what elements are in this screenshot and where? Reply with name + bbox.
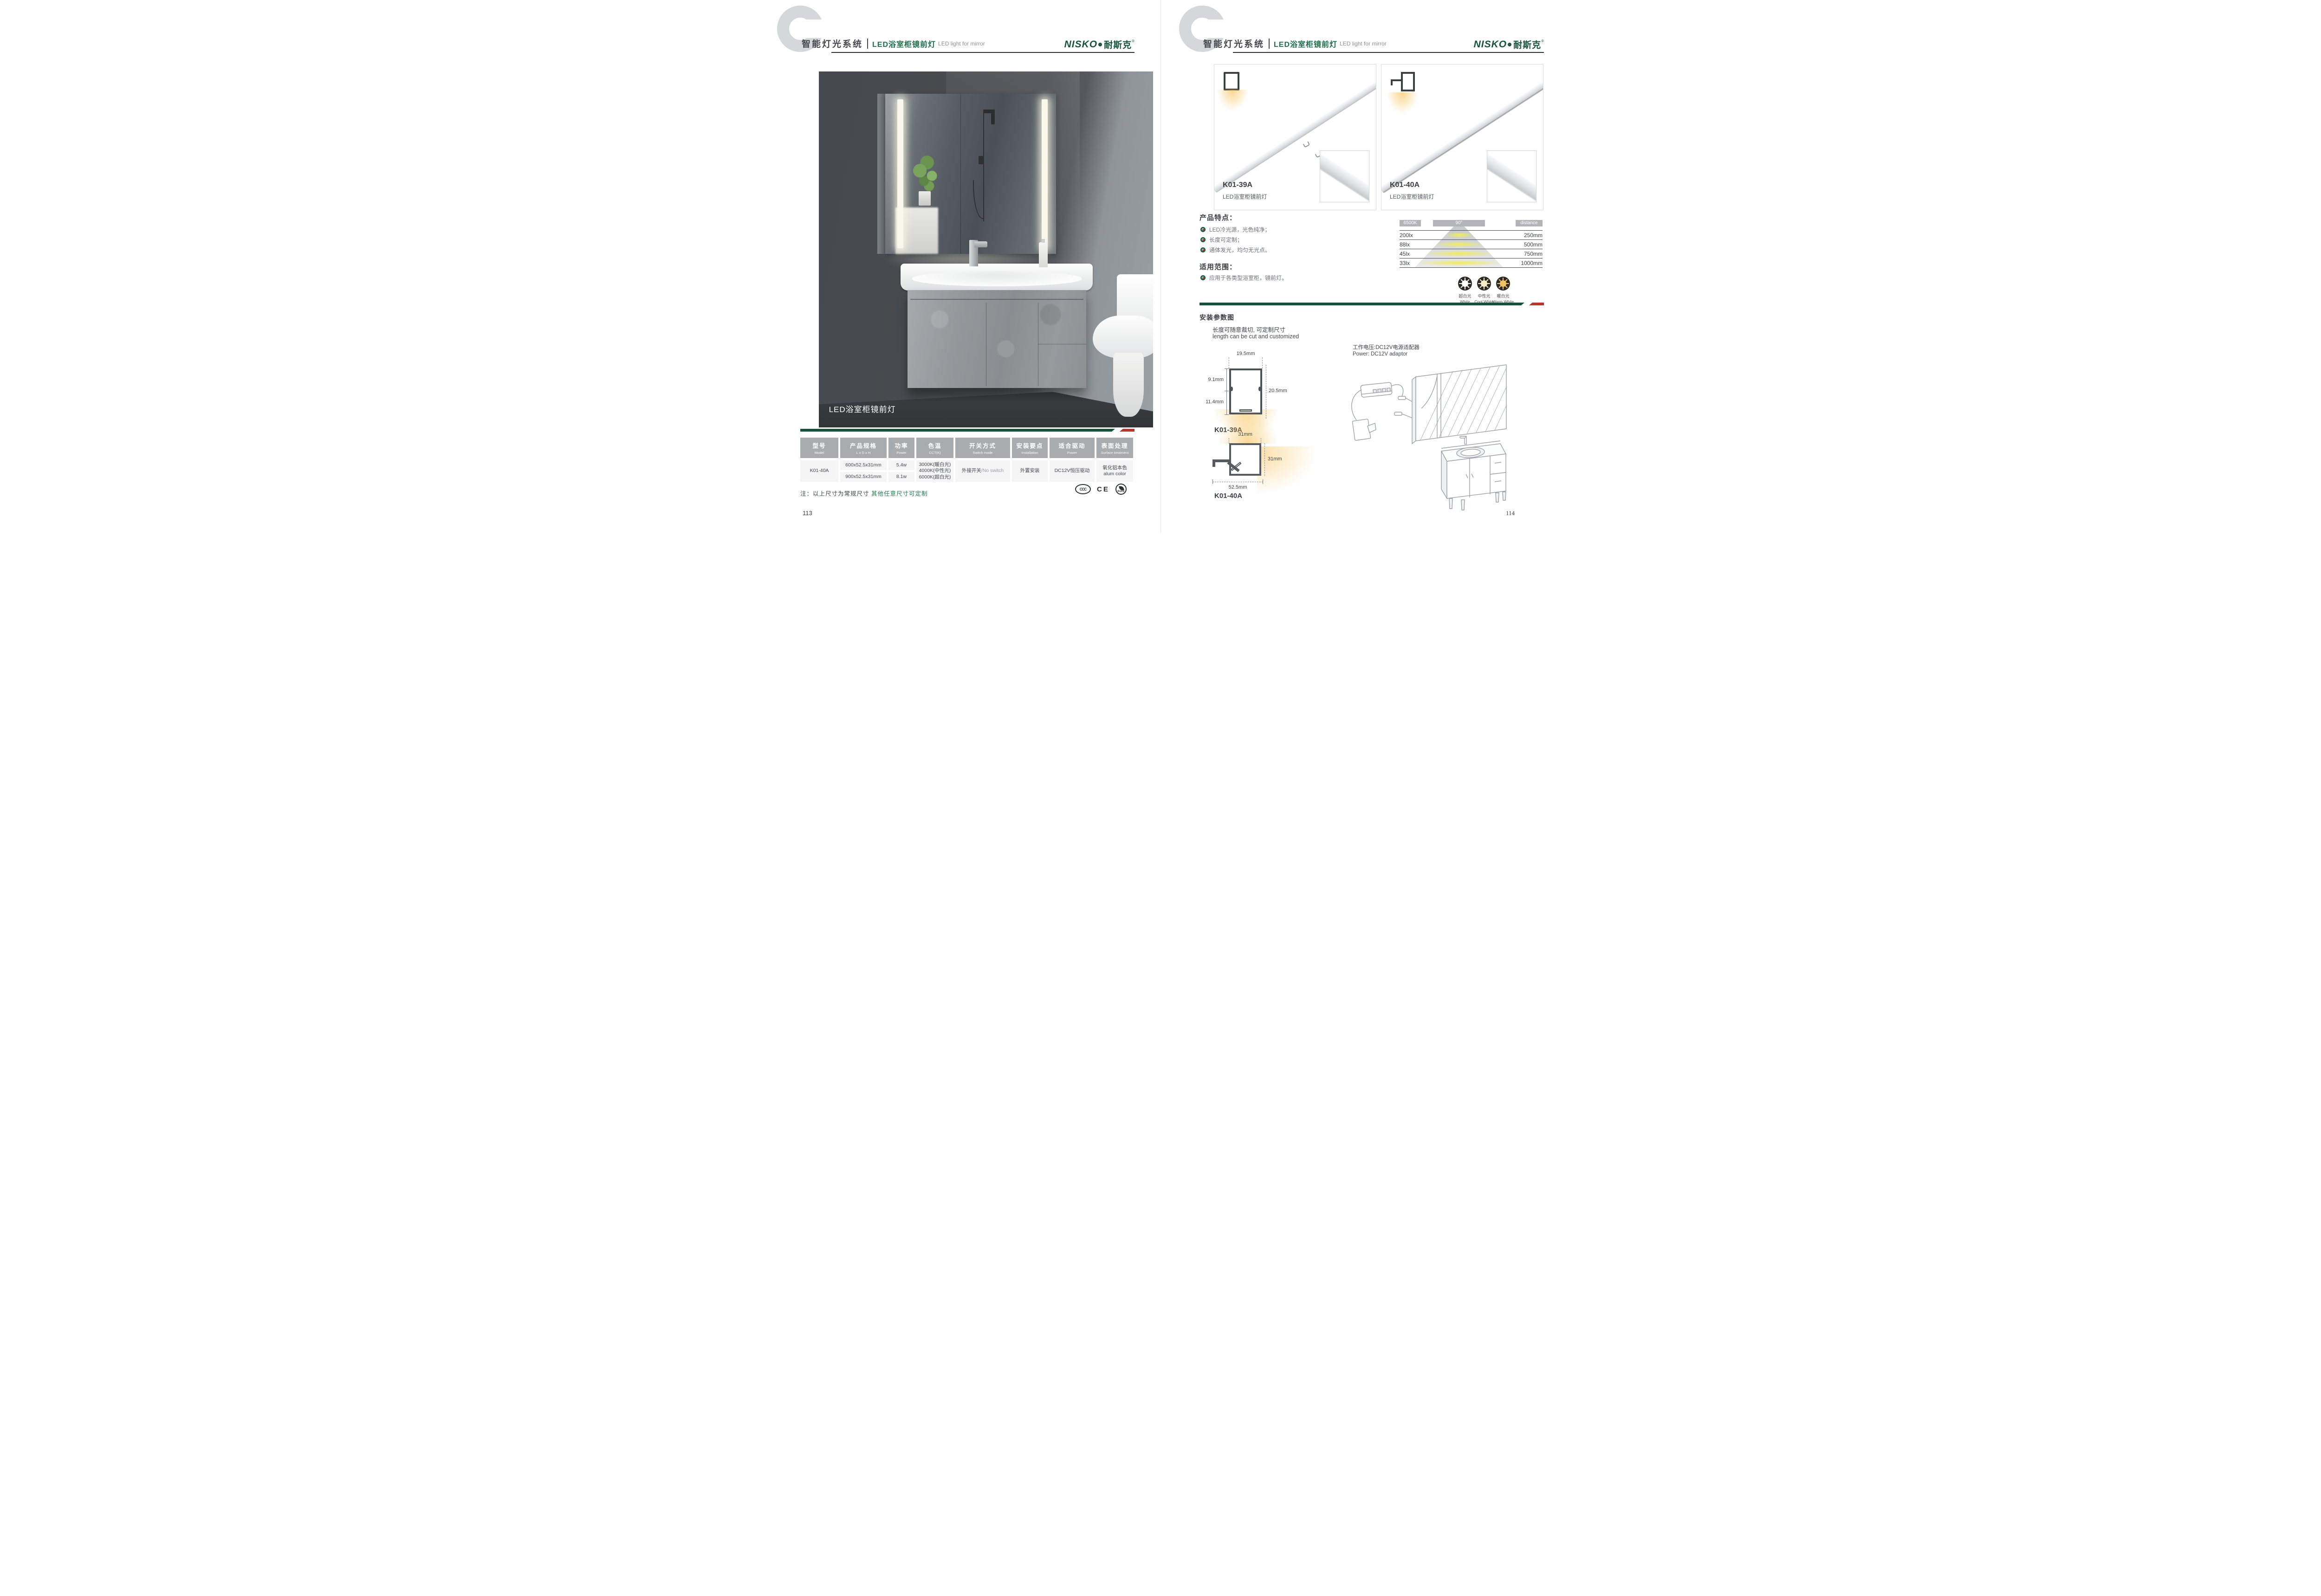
dim-lower: 11.4mm — [1199, 399, 1224, 405]
product-card-k01-39a: K01-39A LED浴室柜镜前灯 — [1214, 64, 1376, 210]
dim-upper: 9.1mm — [1201, 377, 1224, 382]
product-name: LED浴室柜镜前灯 — [1390, 193, 1434, 200]
cct-header: 6500K — [1400, 220, 1421, 226]
brand-logo-zh: 耐斯克 — [1104, 38, 1132, 51]
channel-profile-icon — [1224, 72, 1239, 90]
sun-icon — [1496, 277, 1510, 291]
brand-logo-dot-icon — [1098, 43, 1102, 46]
glow-icon — [1386, 92, 1419, 115]
shower-head — [991, 113, 995, 124]
dim-top: 31mm — [1229, 432, 1261, 437]
application-title: 适用范围： — [1199, 262, 1237, 271]
spec-table-row: K01-40A 600x52.5x31mm 900x52.5x31mm 5.4w… — [800, 460, 1135, 482]
col-size: 产品规格L x D x H — [840, 438, 887, 458]
power-note-zh: 工作电压:DC12V电源适配器 — [1353, 343, 1420, 351]
cell-switch: 外接开关/No switch — [955, 460, 1010, 482]
mount-flange-lip — [1212, 459, 1215, 467]
photometric-chart: 6500K 90° distance 200lx 88lx 45lx 33lx … — [1400, 220, 1543, 268]
page-title-zh: LED浴室柜镜前灯 — [872, 38, 936, 49]
lux-ellipse — [1445, 232, 1473, 238]
mirror-cabinet — [877, 94, 1056, 254]
vanity-rail — [910, 299, 1084, 300]
mounting-clip-icon — [1303, 141, 1310, 148]
cell-power: 5.4w 8.1w — [888, 460, 914, 482]
page-left: 智能灯光系统 LED浴室柜镜前灯 LED light for mirror NI… — [771, 0, 1160, 532]
lux-value: 200lx — [1400, 232, 1427, 239]
feature-item: LED冷光源，光色纯净； — [1200, 226, 1270, 233]
led-strip-right — [1042, 99, 1048, 248]
cell-size: 600x52.5x31mm 900x52.5x31mm — [840, 460, 887, 482]
header-separator — [1269, 39, 1270, 49]
col-install: 安装要点Installation — [1012, 438, 1048, 458]
col-switch: 开关方式Switch mode — [955, 438, 1010, 458]
page-title-en: LED light for mirror — [938, 40, 985, 47]
vanity-cabinet — [908, 290, 1086, 388]
drawer-divider — [1038, 344, 1086, 344]
header-separator — [867, 39, 868, 49]
cell-install: 外置安装 — [1012, 460, 1048, 482]
toilet — [1093, 274, 1153, 417]
corner-profile-icon — [1391, 72, 1418, 93]
shower-reflection — [971, 110, 998, 231]
power-note-en: Power: DC12V adaptor — [1353, 351, 1407, 357]
rohs-cert-icon: RoHS — [1115, 484, 1127, 495]
detail-bar — [1487, 150, 1537, 202]
distance-value: 750mm — [1510, 251, 1543, 257]
basin — [912, 271, 1081, 286]
lux-ellipse — [1434, 241, 1484, 247]
beam-angle-header: 90° — [1433, 220, 1485, 226]
page-title-en: LED light for mirror — [1340, 40, 1387, 47]
distance-header: distance — [1516, 220, 1543, 226]
product-card-k01-40a: K01-40A LED浴室柜镜前灯 — [1381, 64, 1543, 210]
dim-bottom: 52.5mm — [1212, 485, 1263, 490]
brand-logo-en: NISKO — [1474, 39, 1507, 50]
divider-green-bar — [800, 429, 1115, 432]
col-model: 型号Model — [800, 438, 838, 458]
brand-logo-dot-icon — [1508, 43, 1511, 46]
door-seam — [986, 303, 986, 386]
toilet-base — [1113, 353, 1144, 417]
profile-section-k01-40a — [1229, 443, 1261, 476]
header-rule — [831, 52, 1135, 53]
feature-item: 长度可定制； — [1200, 236, 1243, 244]
product-model: K01-40A — [1390, 181, 1420, 189]
divider-red-accent — [1120, 429, 1135, 432]
cut-note-zh: 长度可随意裁切, 可定制尺寸 — [1212, 325, 1285, 334]
faucet — [969, 240, 978, 266]
lux-ellipse — [1424, 251, 1494, 257]
registered-mark: ® — [1541, 39, 1544, 43]
section-title: 智能灯光系统 — [1203, 37, 1264, 50]
mirror-reflection-corner — [960, 94, 961, 254]
glow-icon — [1216, 90, 1249, 112]
cabinet-side — [877, 94, 885, 254]
col-power: 功率Power — [888, 438, 914, 458]
detail-inset — [1320, 150, 1369, 202]
page-title-zh: LED浴室柜镜前灯 — [1274, 38, 1337, 49]
product-model: K01-39A — [1223, 181, 1252, 189]
size-note-highlight: 其他任意尺寸可定制 — [871, 491, 928, 497]
led-strip-left — [897, 99, 903, 248]
cell-driver: DC12V恒压驱动 — [1050, 460, 1095, 482]
distance-value: 500mm — [1510, 241, 1543, 248]
brand-logo-en: NISKO — [1064, 39, 1098, 50]
bullet-icon — [1200, 227, 1206, 232]
detail-inset — [1487, 150, 1537, 202]
dim-height: 20.5mm — [1269, 388, 1287, 394]
toilet-seat — [1093, 316, 1153, 358]
page-number: 113 — [803, 510, 812, 517]
shower-hose — [973, 180, 984, 219]
page-header: 智能灯光系统 LED浴室柜镜前灯 LED light for mirror — [802, 37, 985, 50]
cell-surface: 氧化铝本色 alum color — [1096, 460, 1133, 482]
install-title: 安装参数图 — [1199, 313, 1234, 322]
shower-arm — [983, 110, 995, 113]
distance-value: 250mm — [1510, 232, 1543, 239]
bullet-icon — [1200, 237, 1206, 242]
features-title: 产品特点： — [1199, 213, 1237, 222]
col-cct: 色温CCT(K) — [916, 438, 953, 458]
section-divider — [1199, 303, 1544, 305]
lux-value: 33lx — [1400, 260, 1427, 266]
profile-icon — [1391, 72, 1418, 93]
spec-table-header: 型号Model 产品规格L x D x H 功率Power 色温CCT(K) 开… — [800, 438, 1135, 458]
lux-ellipse — [1415, 260, 1503, 266]
bullet-icon — [1200, 247, 1206, 252]
installation-illustration — [1346, 358, 1513, 518]
profile-glow-top — [1215, 407, 1280, 444]
feature-item: 通体发光，均匀无光点。 — [1200, 246, 1271, 254]
registered-mark: ® — [1132, 39, 1135, 43]
profile-glow-right — [1257, 446, 1322, 498]
photo-caption: LED浴室柜镜前灯 — [829, 403, 896, 414]
brand-logo: NISKO 耐斯克 ® — [1064, 38, 1135, 51]
product-photo: LED浴室柜镜前灯 — [819, 71, 1153, 427]
drawer-seam — [1038, 303, 1038, 386]
detail-bar — [1320, 150, 1369, 202]
profile-model: K01-40A — [1214, 492, 1242, 500]
page-right: 智能灯光系统 LED浴室柜镜前灯 LED light for mirror NI… — [1160, 0, 1550, 532]
mirror-face — [885, 94, 1056, 254]
soap-bottle — [1039, 242, 1048, 267]
dim-width: 19.5mm — [1229, 351, 1262, 356]
cell-cct: 3000K(暖白光) 4000K(中性光) 6000K(超白光) — [916, 460, 953, 482]
col-driver: 适合驱动Power — [1050, 438, 1095, 458]
section-title: 智能灯光系统 — [802, 37, 863, 50]
dim-side: 31mm — [1268, 456, 1282, 462]
cell-model: K01-40A — [800, 460, 838, 482]
col-surface: 表面处理Surface treatment — [1096, 438, 1133, 458]
cct-warm-white: 暖白光 Warm White — [1487, 277, 1519, 304]
countertop — [901, 264, 1093, 291]
product-name: LED浴室柜镜前灯 — [1223, 193, 1267, 200]
plant-pot — [919, 191, 931, 206]
brand-logo: NISKO 耐斯克 ® — [1474, 38, 1544, 51]
application-item: 应用于各类型浴室柜，镜前灯。 — [1200, 274, 1287, 282]
ce-cert-icon: CE — [1097, 485, 1109, 493]
ccc-cert-icon: CCC — [1075, 484, 1091, 494]
header-rule — [1233, 52, 1544, 53]
distance-value: 1000mm — [1510, 260, 1543, 266]
spec-table: 型号Model 产品规格L x D x H 功率Power 色温CCT(K) 开… — [800, 438, 1135, 482]
profile-icon — [1224, 72, 1239, 90]
lux-value: 45lx — [1400, 251, 1427, 257]
brand-logo-zh: 耐斯克 — [1513, 38, 1541, 51]
page-header: 智能灯光系统 LED浴室柜镜前灯 LED light for mirror — [1203, 37, 1387, 50]
catalog-spread: 智能灯光系统 LED浴室柜镜前灯 LED light for mirror NI… — [771, 0, 1550, 532]
bullet-icon — [1200, 275, 1206, 280]
page-number: 114 — [1506, 510, 1515, 517]
lux-value: 88lx — [1400, 241, 1427, 248]
section-divider — [800, 429, 1135, 432]
shower-handset — [979, 156, 984, 164]
cut-note-en: length can be cut and customized — [1212, 333, 1299, 340]
size-note: 注：以上尺寸为常规尺寸 其他任意尺寸可定制 — [800, 489, 928, 498]
certifications: CCC CE RoHS — [1075, 484, 1127, 495]
